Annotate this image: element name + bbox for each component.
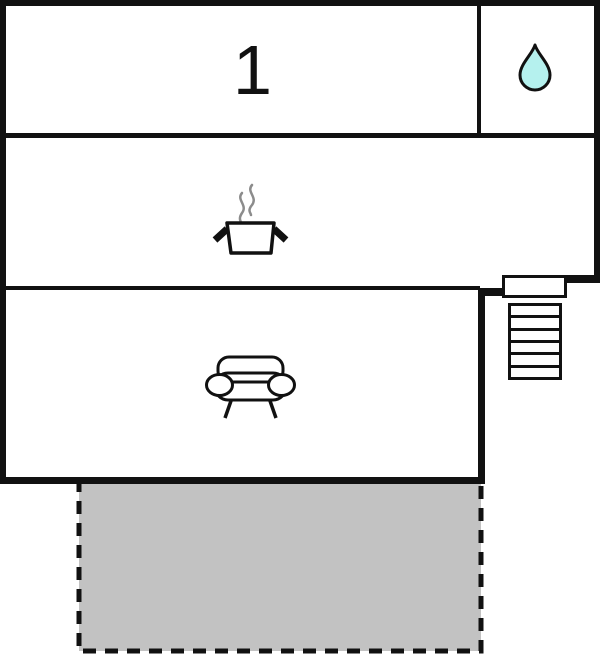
wall-bedroom-bathroom <box>477 6 481 133</box>
room-1-number: 1 <box>233 30 272 110</box>
wall-living-bottom <box>0 477 485 484</box>
stair-step <box>511 318 559 330</box>
sofa-icon <box>203 352 298 424</box>
water-drop-icon <box>514 42 556 94</box>
stairs-icon <box>508 303 562 380</box>
stair-step <box>511 355 559 367</box>
sofa-armrest-left <box>207 375 233 396</box>
pot-handle-right <box>274 229 286 240</box>
pot-body <box>227 223 274 253</box>
steam-line-left <box>240 193 244 223</box>
room-1-label: 1 <box>6 6 477 133</box>
wall-outer-right <box>594 0 600 283</box>
wall-living-right <box>478 288 485 484</box>
pot-handle-left <box>215 229 227 240</box>
entrance-door <box>502 275 567 298</box>
terrace-fill <box>79 479 481 651</box>
wall-entry-jog-right <box>562 275 600 283</box>
floor-plan: 1 <box>0 0 600 656</box>
stair-step <box>511 343 559 355</box>
wall-kitchen-bottom <box>0 286 480 290</box>
wall-bedroom-kitchen <box>0 133 600 138</box>
cooking-pot-icon <box>210 181 295 261</box>
stair-step <box>511 331 559 343</box>
steam-line-right <box>249 185 253 215</box>
water-drop-shape <box>520 45 550 90</box>
stair-step <box>511 368 559 377</box>
stair-step <box>511 306 559 318</box>
sofa-armrest-right <box>269 375 295 396</box>
terrace-area <box>74 479 486 656</box>
